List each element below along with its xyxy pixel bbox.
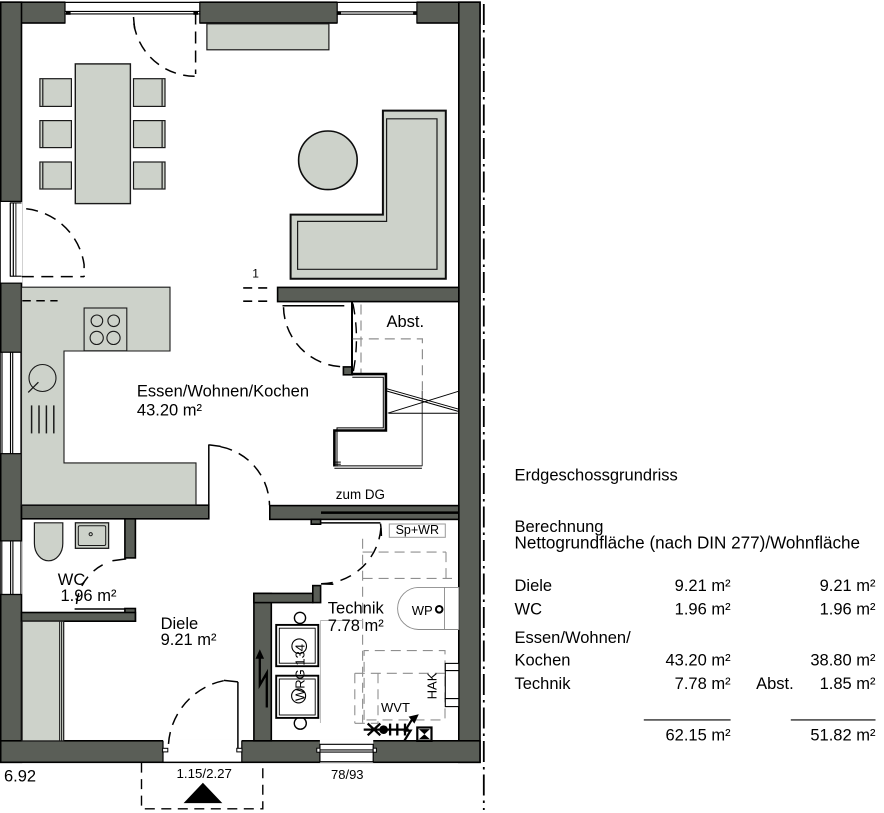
svg-text:51.82 m²: 51.82 m² xyxy=(810,727,876,745)
svg-text:WC: WC xyxy=(515,600,543,618)
svg-text:Diele: Diele xyxy=(515,577,553,595)
svg-text:Sp+WR: Sp+WR xyxy=(396,523,439,537)
svg-text:9.21 m²: 9.21 m² xyxy=(820,577,876,595)
svg-text:Essen/Wohnen/: Essen/Wohnen/ xyxy=(515,629,632,647)
svg-text:1.85 m²: 1.85 m² xyxy=(820,675,876,693)
svg-text:WRG 134: WRG 134 xyxy=(293,644,308,701)
svg-text:zum DG: zum DG xyxy=(336,487,385,502)
svg-text:Kochen: Kochen xyxy=(515,652,571,670)
svg-text:1.15/2.27: 1.15/2.27 xyxy=(177,766,232,781)
svg-text:1.96 m²: 1.96 m² xyxy=(820,600,876,618)
svg-text:WVT: WVT xyxy=(381,700,410,715)
svg-text:WP: WP xyxy=(412,603,433,618)
svg-text:1.96 m²: 1.96 m² xyxy=(61,587,117,605)
svg-text:6.92: 6.92 xyxy=(4,767,36,785)
svg-text:Abst.: Abst. xyxy=(756,675,794,693)
svg-text:9.21 m²: 9.21 m² xyxy=(675,577,731,595)
svg-text:7.78 m²: 7.78 m² xyxy=(675,675,731,693)
svg-text:1: 1 xyxy=(252,267,259,281)
svg-text:9.21 m²: 9.21 m² xyxy=(161,631,217,649)
svg-text:Abst.: Abst. xyxy=(387,313,425,331)
svg-text:Technik: Technik xyxy=(515,675,572,693)
svg-text:43.20 m²: 43.20 m² xyxy=(665,652,731,670)
svg-text:1.96 m²: 1.96 m² xyxy=(675,600,731,618)
svg-text:Nettogrundfläche (nach DIN 277: Nettogrundfläche (nach DIN 277)/Wohnfläc… xyxy=(515,533,861,552)
svg-text:43.20 m²: 43.20 m² xyxy=(137,402,203,420)
svg-text:Erdgeschossgrundriss: Erdgeschossgrundriss xyxy=(515,467,678,485)
svg-text:7.78 m²: 7.78 m² xyxy=(328,617,384,635)
svg-text:78/93: 78/93 xyxy=(331,767,364,782)
svg-text:62.15 m²: 62.15 m² xyxy=(665,727,731,745)
svg-text:HAK: HAK xyxy=(425,672,440,699)
svg-text:Essen/Wohnen/Kochen: Essen/Wohnen/Kochen xyxy=(137,383,309,401)
svg-text:Technik: Technik xyxy=(328,600,385,618)
svg-text:38.80 m²: 38.80 m² xyxy=(810,652,876,670)
